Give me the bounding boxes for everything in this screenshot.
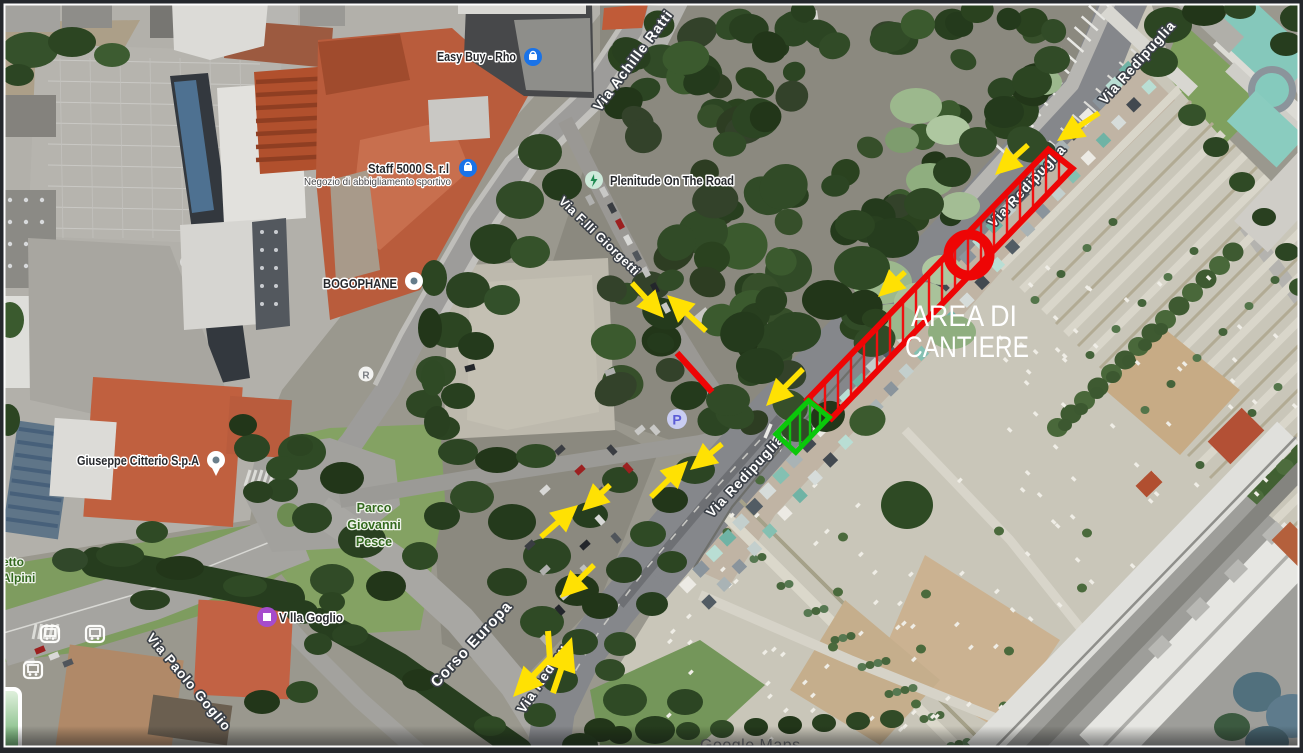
svg-text:Staff 5000 S. r.l: Staff 5000 S. r.l — [368, 162, 449, 176]
svg-text:CANTIERE: CANTIERE — [905, 331, 1029, 364]
svg-text:Easy Buy - Rho: Easy Buy - Rho — [437, 50, 516, 64]
svg-text:Negozio di abbigliamento sport: Negozio di abbigliamento sportivo — [304, 176, 451, 188]
svg-text:Alpini: Alpini — [2, 571, 35, 585]
svg-text:Parco: Parco — [357, 501, 392, 515]
svg-text:R: R — [362, 371, 370, 382]
svg-text:P: P — [672, 412, 681, 428]
svg-text:Pesce: Pesce — [356, 535, 392, 549]
svg-text:V lla Goglio: V lla Goglio — [279, 611, 343, 625]
svg-text:Giovanni: Giovanni — [347, 518, 400, 532]
svg-text:Plenitude On The Road: Plenitude On The Road — [610, 174, 734, 188]
svg-text:AREA DI: AREA DI — [911, 300, 1017, 333]
svg-text:Giuseppe Citterio S.p.A: Giuseppe Citterio S.p.A — [77, 454, 199, 468]
svg-text:BOGOPHANE: BOGOPHANE — [323, 277, 397, 291]
